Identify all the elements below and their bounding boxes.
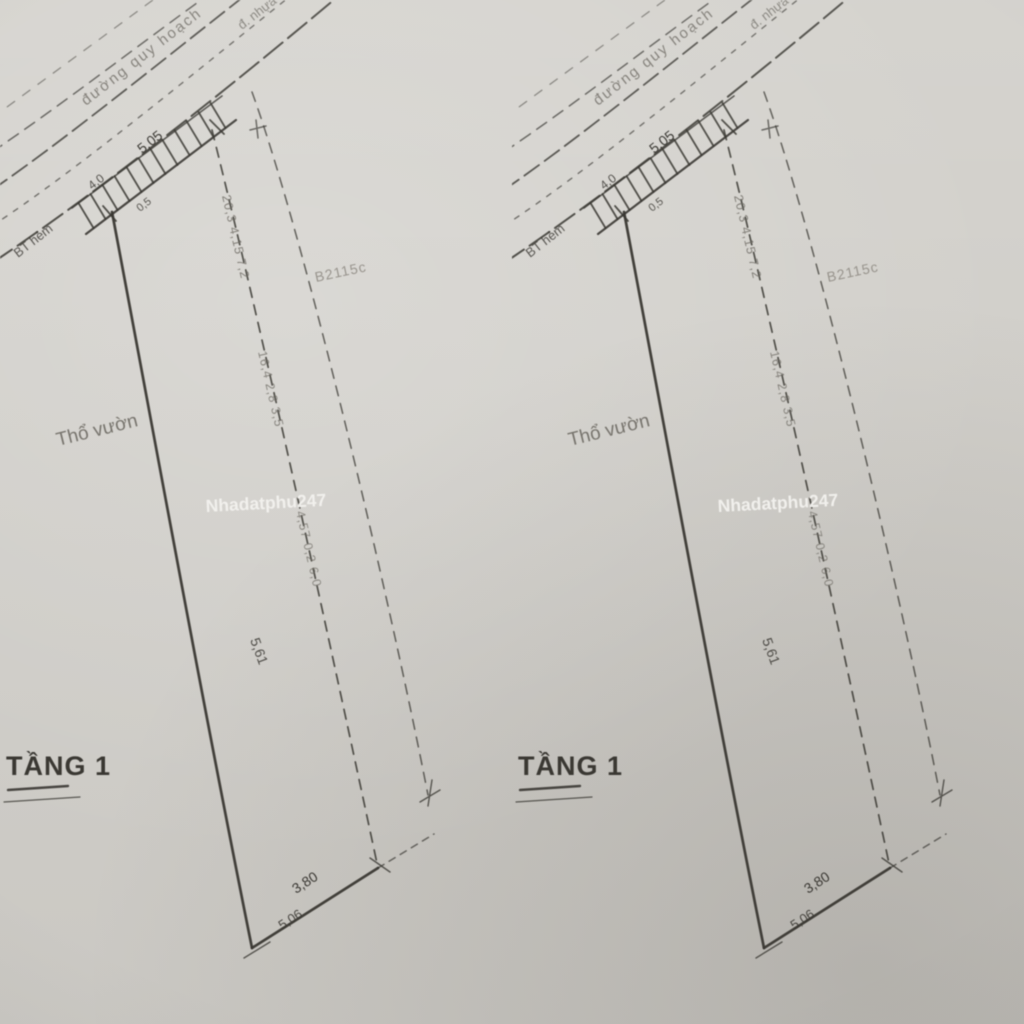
road-line-3 <box>0 0 298 226</box>
survey-drawing: đường quy hoạch đ. nhựa BT hẻm 5,05 4,0 … <box>0 0 512 1024</box>
floor-caption-underline-1 <box>520 786 580 790</box>
dim-bottom-lower: 5,06 <box>275 906 304 932</box>
dim-side-mid: 5,61 <box>247 636 271 667</box>
dim-side-mid: 5,61 <box>759 636 783 667</box>
boundary-annotation-2: 16,4 2,8 3,5 <box>767 350 798 429</box>
bottom-extension-dashed <box>378 834 434 868</box>
survey-cross-mark <box>762 120 778 138</box>
floor-caption-underline-2 <box>516 797 592 802</box>
survey-cross-mark <box>250 120 266 138</box>
parcel-code-label: B2115c <box>313 258 368 285</box>
survey-panel-left: đường quy hoạch đ. nhựa BT hẻm 5,05 4,0 … <box>0 0 512 1024</box>
bottom-extension-dashed <box>890 834 946 868</box>
road-label-right: đ. nhựa <box>747 0 792 32</box>
floor-caption: TẦNG 1 <box>518 750 623 781</box>
boundary-annotation-3: 4,57 0,2 6,0 <box>293 510 324 589</box>
floor-caption-underline-2 <box>4 797 80 802</box>
road-label-upper: đường quy hoạch <box>78 4 205 109</box>
road-line-2 <box>512 0 764 190</box>
adjacent-boundary-dashed <box>764 92 940 795</box>
floor-caption-underline-1 <box>8 786 68 790</box>
adjacent-boundary-dashed <box>252 92 428 795</box>
adjacent-boundary-end-tick <box>420 780 440 806</box>
road-label-upper: đường quy hoạch <box>590 4 717 109</box>
road-label-right: đ. nhựa <box>235 0 280 32</box>
survey-drawing: đường quy hoạch đ. nhựa BT hẻm 5,05 4,0 … <box>512 0 1024 1024</box>
dim-front: 5,05 <box>134 127 165 157</box>
boundary-annotation-1: 20,3 4,15 7,2 <box>219 194 252 281</box>
scanned-survey-page: đường quy hoạch đ. nhựa BT hẻm 5,05 4,0 … <box>0 0 1024 1024</box>
entrance-hatch-strokes <box>79 103 226 228</box>
dim-offset: 0,5 <box>646 195 665 214</box>
alley-label: BT hẻm <box>523 221 568 261</box>
land-type-label: Thổ vườn <box>54 410 140 451</box>
dim-front: 5,05 <box>646 127 677 157</box>
entrance-hatch-strokes <box>591 103 738 228</box>
alley-label: BT hẻm <box>11 221 56 261</box>
dim-offset: 0,5 <box>134 195 153 214</box>
boundary-annotation-1: 20,3 4,15 7,2 <box>731 194 764 281</box>
dim-bottom-lower: 5,06 <box>787 906 816 932</box>
boundary-annotation-3: 4,57 0,2 6,0 <box>805 510 836 589</box>
road-line-3 <box>512 0 810 226</box>
plot-left-boundary <box>112 212 252 948</box>
dim-bottom-upper: 3,80 <box>801 868 833 896</box>
road-line-2 <box>0 0 252 190</box>
watermark-text: Nhadatphu247 <box>717 490 838 516</box>
survey-panel-right: đường quy hoạch đ. nhựa BT hẻm 5,05 4,0 … <box>512 0 1024 1024</box>
adjacent-boundary-end-tick <box>932 780 952 806</box>
boundary-annotation-2: 16,4 2,8 3,5 <box>255 350 286 429</box>
land-type-label: Thổ vườn <box>566 410 652 451</box>
plot-left-boundary <box>624 212 764 948</box>
parcel-code-label: B2115c <box>825 258 880 285</box>
dim-bottom-upper: 3,80 <box>289 868 321 896</box>
floor-caption: TẦNG 1 <box>6 750 111 781</box>
watermark-text: Nhadatphu247 <box>205 490 326 516</box>
